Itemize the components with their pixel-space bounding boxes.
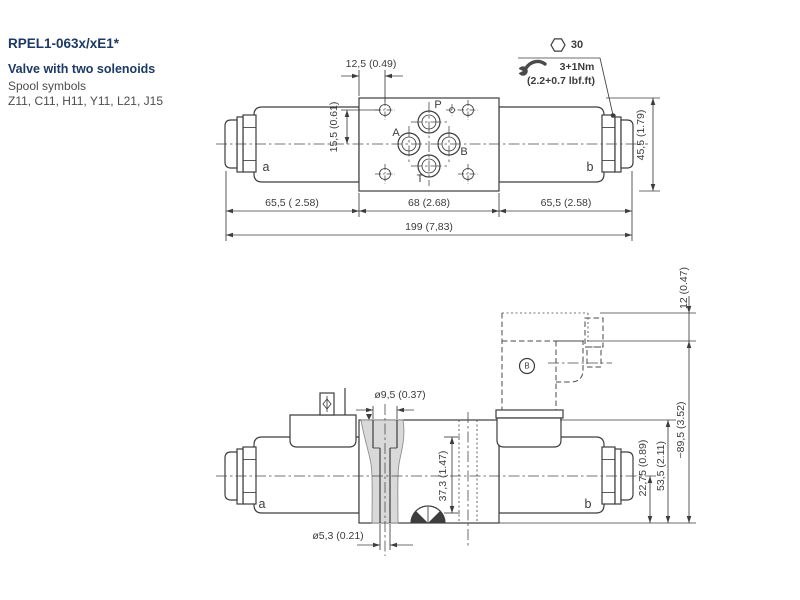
connector-b xyxy=(496,410,563,447)
catalog-drawing-page: RPEL1-063x/xE1* Valve with two solenoids… xyxy=(0,0,800,600)
dim-hole-top-label: ø9,5 (0.37) xyxy=(374,389,425,401)
dim-segment-left-label: 65,5 ( 2.58) xyxy=(265,197,319,209)
dim-segment-center-label: 68 (2.68) xyxy=(408,197,450,209)
dim-offset-x xyxy=(341,70,403,102)
port-b-label: B xyxy=(460,146,467,158)
dim-solenoid-diameter-label: 37,3 (1.47) xyxy=(437,451,449,502)
dim-axis-height-label: 22,75 (0.89) xyxy=(637,440,649,497)
solenoid-b-label-top: b xyxy=(587,160,594,174)
connector-a xyxy=(290,388,356,447)
dim-segment-right-label: 65,5 (2.58) xyxy=(541,197,592,209)
dim-connector-top-label: 12 (0.47) xyxy=(678,267,690,309)
plug-dashed-outline xyxy=(502,313,612,410)
dim-body-height-label: 45,5 (1.79) xyxy=(635,110,647,161)
connector-b-label: B xyxy=(524,362,529,371)
dim-offset-x-label: 12,5 (0.49) xyxy=(346,58,397,70)
dim-hole-bottom-label: ø5,3 (0.21) xyxy=(312,530,363,542)
top-view-drawing xyxy=(216,70,660,241)
dim-total-length-label: 199 (7,83) xyxy=(405,221,453,233)
solenoid-b-label-side: b xyxy=(585,497,592,511)
solenoid-a-label-side: a xyxy=(259,497,266,511)
drawing-subtitle: Valve with two solenoids xyxy=(8,62,155,76)
surface-mark xyxy=(366,414,372,420)
hexagon-icon xyxy=(551,39,565,51)
page-title: RPEL1-063x/xE1* xyxy=(8,36,119,51)
torque-imperial-label: (2.2+0.7 lbf.ft) xyxy=(527,75,595,87)
torque-metric-label: 3+1Nm xyxy=(560,61,595,73)
dim-offset-y-label: 15,5 (0.61) xyxy=(328,102,340,153)
port-t-label: T xyxy=(417,173,424,185)
port-p-label: P xyxy=(434,99,441,111)
side-view-drawing xyxy=(216,296,696,556)
dim-total-height-label: ~89,5 (3.52) xyxy=(675,402,687,459)
spool-symbols-label: Spool symbols xyxy=(8,79,86,93)
leader-dot xyxy=(611,113,616,118)
spool-symbols-list: Z11, C11, H11, Y11, L21, J15 xyxy=(8,94,163,108)
solenoid-a-label-top: a xyxy=(263,160,270,174)
dim-body-height-side-label: 53,5 (2.11) xyxy=(655,441,667,491)
port-a-label: A xyxy=(392,127,399,139)
wrench-size-label: 30 xyxy=(571,39,583,51)
wrench-icon xyxy=(513,61,545,76)
